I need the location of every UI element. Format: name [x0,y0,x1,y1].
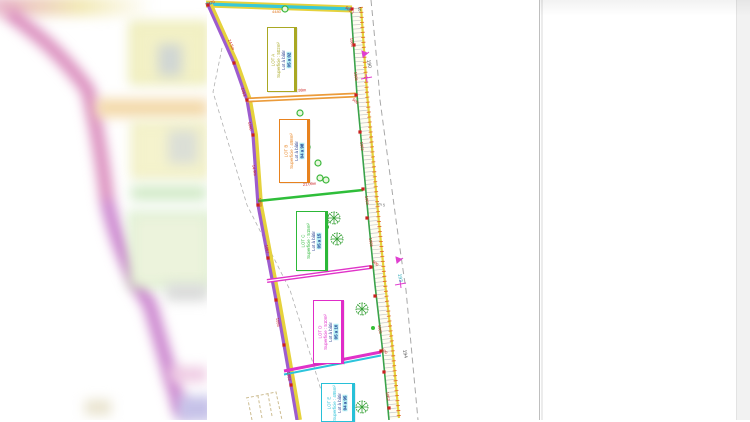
lot-c-label-box: LOT C Superficie : 515m² Lot à bâtir 05 … [296,211,328,271]
blurred-divider [169,367,207,382]
tree-icon [328,212,340,224]
lot-e-value: 04 a 95 [342,394,347,411]
divider-lot-b-c [258,190,363,201]
lot-b-value: 04 a 98 [299,143,304,160]
plan-annotation: 1065 [377,325,383,335]
tree-icon [356,401,368,413]
shrub-icon [297,110,303,116]
blurred-divider [178,396,207,420]
plan-annotation: 194 [401,349,408,358]
tree-icon [356,303,368,315]
listing-plan-image: N4704480500,11024.5m1063106014.9m1059105… [0,0,750,420]
plan-annotation: 1057 [264,244,271,254]
lot-b-label-box: LOT B Superficie : 498m² Lot à bâtir 04 … [279,119,310,183]
lot-b-status: Lot à bâtir [294,141,299,161]
plan-annotation: 1062 [385,392,391,402]
lot-b-name: LOT B [283,145,288,158]
survey-point [251,133,254,136]
survey-point [266,256,269,259]
plan-annotation: 1063 [364,195,370,205]
survey-point [373,294,376,297]
survey-point [382,370,385,373]
lot-d-label-box: LOT D Superficie : 510m² Lot à bâtir 05 … [313,300,344,364]
survey-point [387,406,390,409]
survey-point [282,343,285,346]
plan-annotation: 1053 [286,371,292,381]
lot-e-label-box: LOT E Superficie : 495m² Lot à bâtir 04 … [321,383,355,422]
plan-annotation: 1066 [353,71,359,81]
shrub-icon [315,160,321,166]
shrub-icon [323,177,329,183]
lot-a-value: 05 a 02 [286,51,291,68]
page-background-strip [736,0,750,420]
survey-point [245,98,248,101]
existing-structure-outline [246,392,282,420]
shrub-icon [282,6,288,12]
survey-point [365,216,368,219]
blurred-label-box [129,212,207,288]
blurred-adjacent-plan-area [0,0,207,420]
survey-point [361,187,364,190]
top-shadow-gradient [540,0,750,16]
lot-d-status: Lot à bâtir [328,322,333,342]
image-edge-line [539,0,540,420]
blurred-divider [96,99,207,117]
plan-annotation: 1062 [359,141,365,151]
blurred-divider [166,284,207,301]
blurred-text-smudge [158,44,182,76]
tree-dot-icon [371,326,375,330]
blurred-structure [85,400,111,415]
lot-c-value: 05 a 15 [316,233,321,250]
divider-lot-a-b [247,95,356,100]
image-edge-shadow [541,0,543,420]
tree-icon [331,233,343,245]
shrub-icon [317,175,323,181]
survey-point [358,130,361,133]
plan-annotation: 1068 [368,237,374,247]
plan-annotation: 1055 [275,317,281,327]
blurred-text-smudge [168,130,198,164]
lot-d-name: LOT D [317,326,322,339]
plan-annotation: 4480 [272,9,282,14]
lot-d-area: Superficie : 510m² [322,314,327,350]
plan-annotation: 193 [396,273,403,282]
lot-d-value: 05 a 10 [333,324,338,341]
lot-a-label-box: LOT A Superficie : 502m² Lot à bâtir 05 … [267,27,297,92]
lot-b-area: Superficie : 498m² [288,133,293,169]
road-frontage-band [351,7,399,420]
survey-point [274,298,277,301]
plan-annotation: 1064 [349,37,355,47]
plan-annotation: 14.9m [251,164,258,176]
survey-point [232,61,235,64]
blurred-divider [131,186,207,200]
survey-point [289,383,292,386]
survey-point [369,265,372,268]
